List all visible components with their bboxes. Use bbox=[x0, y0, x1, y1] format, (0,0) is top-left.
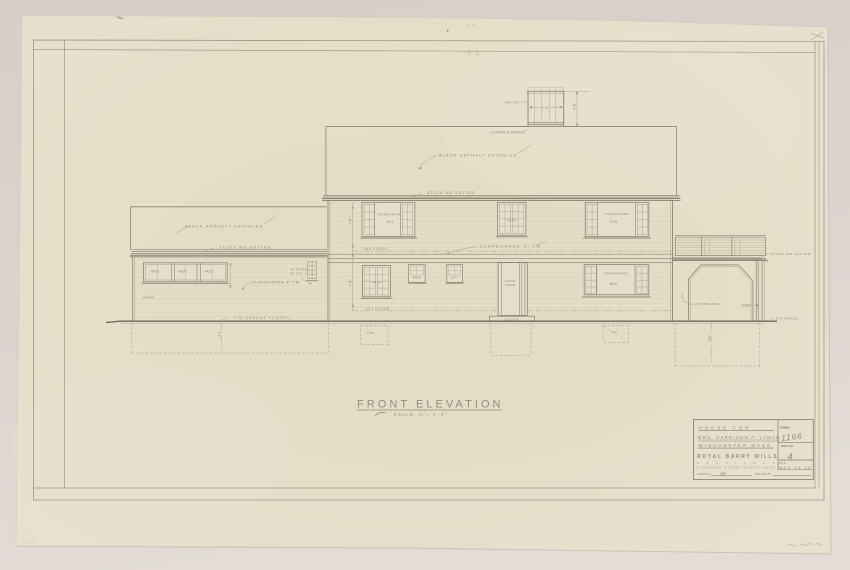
svg-text:FLUSH: FLUSH bbox=[505, 279, 516, 283]
svg-text:FIN GRADE: FIN GRADE bbox=[776, 317, 798, 321]
svg-text:DATE: DATE bbox=[779, 462, 786, 465]
svg-text:849: 849 bbox=[610, 282, 617, 286]
svg-text:2ND FLOOR: 2ND FLOOR bbox=[364, 247, 388, 251]
svg-text:IN PLACE: IN PLACE bbox=[291, 267, 307, 271]
svg-text:THERMOPANE: THERMOPANE bbox=[605, 212, 629, 216]
svg-text:4420: 4420 bbox=[205, 270, 213, 274]
svg-text:1ST FLOOR: 1ST FLOOR bbox=[366, 307, 390, 311]
svg-text:4420: 4420 bbox=[178, 270, 186, 274]
svg-text:GRADE: GRADE bbox=[142, 296, 154, 300]
svg-text:HOUSE FOR: HOUSE FOR bbox=[699, 425, 750, 430]
svg-text:CHECKED BY: CHECKED BY bbox=[755, 473, 772, 476]
svg-text:4: 4 bbox=[788, 452, 793, 463]
svg-text:SCREEN: SCREEN bbox=[742, 303, 752, 307]
svg-text:PANTRY: PANTRY bbox=[413, 275, 422, 279]
svg-text:FLUSH BOARDS: FLUSH BOARDS bbox=[690, 302, 719, 306]
svg-text:MAR 14 38: MAR 14 38 bbox=[779, 466, 810, 470]
svg-text:BRICK: BRICK bbox=[505, 100, 518, 104]
svg-text:4 8: 4 8 bbox=[468, 51, 481, 57]
svg-text:349: 349 bbox=[610, 220, 617, 224]
svg-text:THERMOPANE: THERMOPANE bbox=[604, 272, 628, 276]
svg-text:2′-0″: 2′-0″ bbox=[612, 330, 618, 334]
svg-text:BLACK ASPHALT SHINGLES: BLACK ASPHALT SHINGLES bbox=[185, 225, 262, 229]
svg-text:3′-6″: 3′-6″ bbox=[573, 102, 577, 110]
svg-text:4′-0″: 4′-0″ bbox=[218, 331, 222, 337]
svg-text:4′-8″: 4′-8″ bbox=[542, 106, 550, 110]
svg-text:7′-8″: 7′-8″ bbox=[349, 279, 353, 286]
svg-text:COMM. NO.: COMM. NO. bbox=[780, 426, 791, 430]
svg-text:4420: 4420 bbox=[151, 270, 159, 274]
svg-text:CLAPBOARDS 4″ TW: CLAPBOARDS 4″ TW bbox=[252, 280, 300, 284]
svg-text:7′-8″: 7′-8″ bbox=[349, 217, 353, 224]
svg-text:ROYAL BARRY WILLS: ROYAL BARRY WILLS bbox=[697, 454, 777, 460]
svg-text:DRAWN BY: DRAWN BY bbox=[697, 473, 711, 476]
svg-text:8 NEWBURY STREET BOSTON MA: 8 NEWBURY STREET BOSTON MASS bbox=[697, 466, 774, 469]
svg-text:BL 2-LT ↗: BL 2-LT ↗ bbox=[291, 271, 307, 275]
svg-text:4424: 4424 bbox=[507, 219, 516, 223]
svg-text:STOCK WD GUTTER: STOCK WD GUTTER bbox=[771, 252, 811, 256]
svg-text:BLACK ASPHALT SHINGLES: BLACK ASPHALT SHINGLES bbox=[439, 154, 516, 158]
svg-text:SCALE: ¼″= 1′-0″: SCALE: ¼″= 1′-0″ bbox=[394, 412, 447, 417]
svg-text:LAV’Y: LAV’Y bbox=[450, 275, 459, 279]
svg-text:WINCHESTER MASS.: WINCHESTER MASS. bbox=[699, 443, 774, 448]
svg-text:F′TG: F′TG bbox=[367, 331, 374, 335]
svg-text:COPPER FLASHING: COPPER FLASHING bbox=[490, 131, 524, 135]
svg-text:541: 541 bbox=[387, 220, 394, 224]
svg-text:THERMOPANE: THERMOPANE bbox=[377, 212, 401, 216]
svg-text:STOCK WD GUTTER: STOCK WD GUTTER bbox=[427, 191, 474, 195]
svg-text:DOOR: DOOR bbox=[505, 283, 515, 287]
svg-text:3′-0″: 3′-0″ bbox=[707, 335, 711, 341]
svg-text:SHEET NO.: SHEET NO. bbox=[781, 444, 794, 448]
svg-text:4414: 4414 bbox=[372, 281, 381, 285]
